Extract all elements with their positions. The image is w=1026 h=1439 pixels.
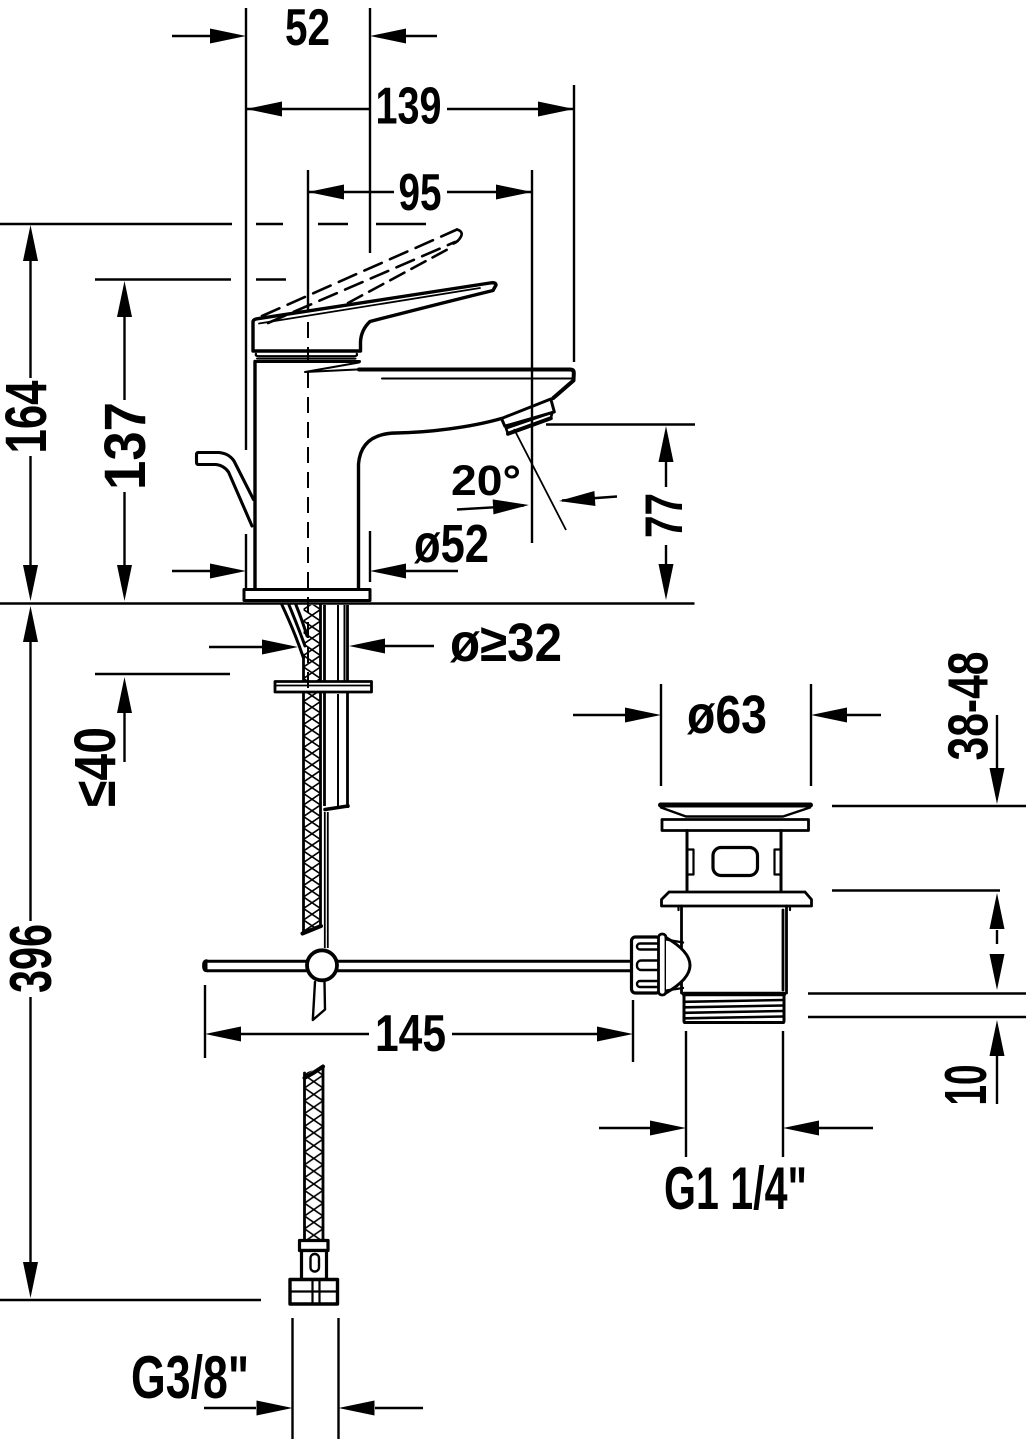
svg-text:10: 10 (933, 1065, 999, 1106)
svg-text:ø63: ø63 (687, 686, 767, 745)
svg-text:137: 137 (93, 402, 158, 490)
svg-text:G1 1/4": G1 1/4" (664, 1155, 807, 1222)
svg-text:139: 139 (376, 78, 442, 136)
svg-text:38-48: 38-48 (937, 652, 1001, 761)
svg-text:≤40: ≤40 (63, 727, 128, 807)
svg-text:G3/8": G3/8" (131, 1344, 249, 1411)
svg-text:145: 145 (375, 1005, 446, 1063)
svg-text:20°: 20° (451, 457, 521, 505)
svg-text:ø≥32: ø≥32 (450, 614, 562, 673)
svg-text:164: 164 (0, 381, 59, 454)
svg-text:52: 52 (285, 0, 330, 57)
svg-text:95: 95 (399, 164, 442, 222)
svg-text:396: 396 (0, 924, 64, 993)
svg-text:77: 77 (635, 493, 694, 538)
svg-text:ø52: ø52 (414, 515, 489, 574)
